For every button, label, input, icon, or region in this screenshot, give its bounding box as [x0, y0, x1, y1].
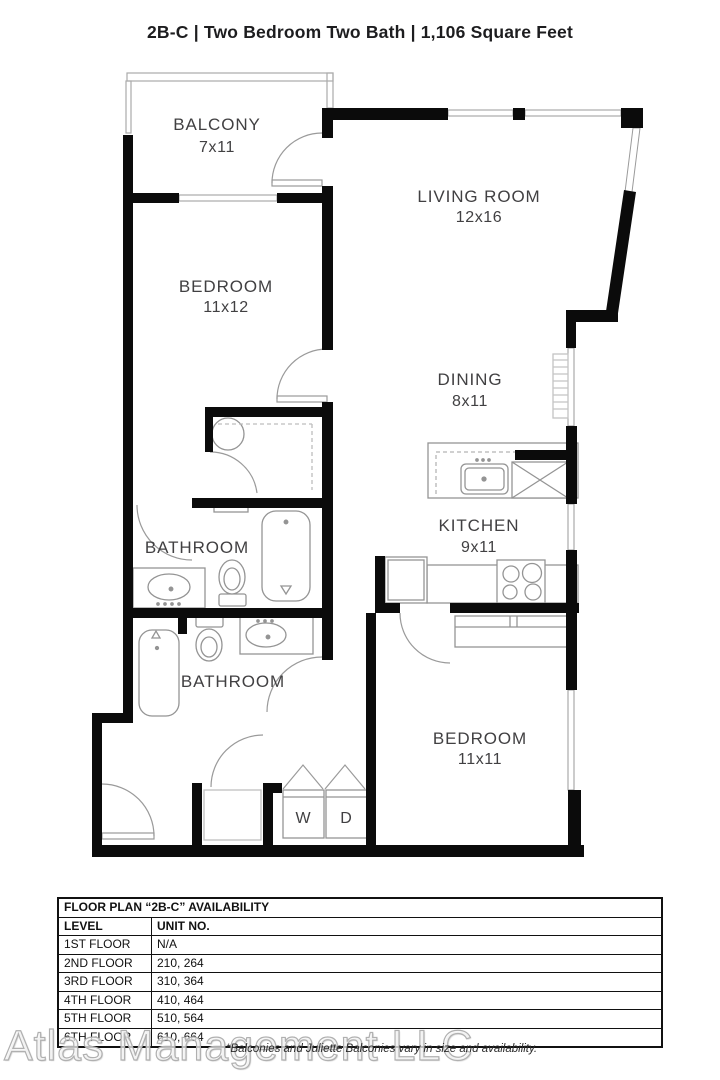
- balcony-dims: 7x11: [199, 139, 235, 156]
- stove: [497, 560, 545, 603]
- disclaimer-text: *Balconies and Juliette Balconies vary i…: [226, 1043, 537, 1055]
- window-balcony: [179, 195, 277, 201]
- col-header-level: LEVEL: [58, 917, 152, 936]
- bathtub-1: [262, 511, 310, 601]
- units-cell: 310, 364: [152, 973, 663, 992]
- table-header-row: LEVEL UNIT NO.: [58, 917, 662, 936]
- dining-label: DINING: [438, 370, 503, 389]
- table-title: FLOOR PLAN “2B-C” AVAILABILITY: [58, 898, 662, 917]
- level-cell: 1ST FLOOR: [58, 936, 152, 955]
- bathroom1-label: BATHROOM: [145, 538, 249, 557]
- window-bedroom2: [568, 690, 574, 790]
- entry-door-leaf: [102, 833, 154, 839]
- fixtures: [133, 354, 578, 840]
- dining-shelf: [553, 354, 568, 418]
- table-title-row: FLOOR PLAN “2B-C” AVAILABILITY: [58, 898, 662, 917]
- units-cell: N/A: [152, 936, 663, 955]
- living-room-dims: 12x16: [456, 209, 503, 226]
- doors: [102, 133, 450, 839]
- closet-door-swing: [210, 452, 257, 493]
- dining-dims: 8x11: [452, 393, 488, 410]
- bedroom1-dims: 11x12: [203, 299, 248, 316]
- dryer-label: D: [340, 810, 352, 827]
- vanity-sink-2: [240, 616, 313, 654]
- dishwasher: [512, 462, 568, 498]
- table-row: 3RD FLOOR 310, 364: [58, 973, 662, 992]
- toilet-1: [219, 560, 246, 606]
- window-living-2: [525, 110, 621, 116]
- level-cell: 3RD FLOOR: [58, 973, 152, 992]
- water-heater: [212, 418, 244, 450]
- bifold-doors: [283, 765, 365, 789]
- bedroom1-door-leaf: [277, 396, 327, 402]
- kitchen-dims: 9x11: [461, 539, 497, 556]
- table-row: 1ST FLOOR N/A: [58, 936, 662, 955]
- window-living-angled: [625, 128, 640, 192]
- bedroom1-label: BEDROOM: [179, 277, 273, 296]
- level-cell: 2ND FLOOR: [58, 954, 152, 973]
- bathroom2-label: BATHROOM: [181, 672, 285, 691]
- level-cell: 4TH FLOOR: [58, 991, 152, 1010]
- toilet-2: [196, 616, 223, 661]
- kitchen-label: KITCHEN: [439, 516, 520, 535]
- vanity-sink-1: [133, 568, 205, 608]
- bedroom1-door-swing: [277, 349, 327, 399]
- units-cell: 410, 464: [152, 991, 663, 1010]
- window-dining: [568, 348, 574, 426]
- bathtub-2: [139, 630, 179, 716]
- entry-closet-door-swing: [211, 735, 263, 787]
- entry-closet: [204, 790, 261, 840]
- balcony-label: BALCONY: [173, 115, 261, 134]
- table-row: 4TH FLOOR 410, 464: [58, 991, 662, 1010]
- units-cell: 210, 264: [152, 954, 663, 973]
- living-room-label: LIVING ROOM: [417, 187, 540, 206]
- entry-door-swing: [102, 784, 154, 836]
- window-living-1: [448, 110, 513, 116]
- washer-label: W: [295, 810, 311, 827]
- balcony-door-swing: [272, 133, 322, 183]
- col-header-unit: UNIT NO.: [152, 917, 663, 936]
- refrigerator: [385, 557, 427, 603]
- balcony-door-leaf: [272, 180, 322, 186]
- bedroom2-dims: 11x11: [458, 751, 502, 768]
- bedroom2-label: BEDROOM: [433, 729, 527, 748]
- table-row: 2ND FLOOR 210, 264: [58, 954, 662, 973]
- bedroom2-door-swing: [400, 613, 450, 663]
- bedroom2-closet: [455, 616, 572, 647]
- window-kitchen: [568, 504, 574, 550]
